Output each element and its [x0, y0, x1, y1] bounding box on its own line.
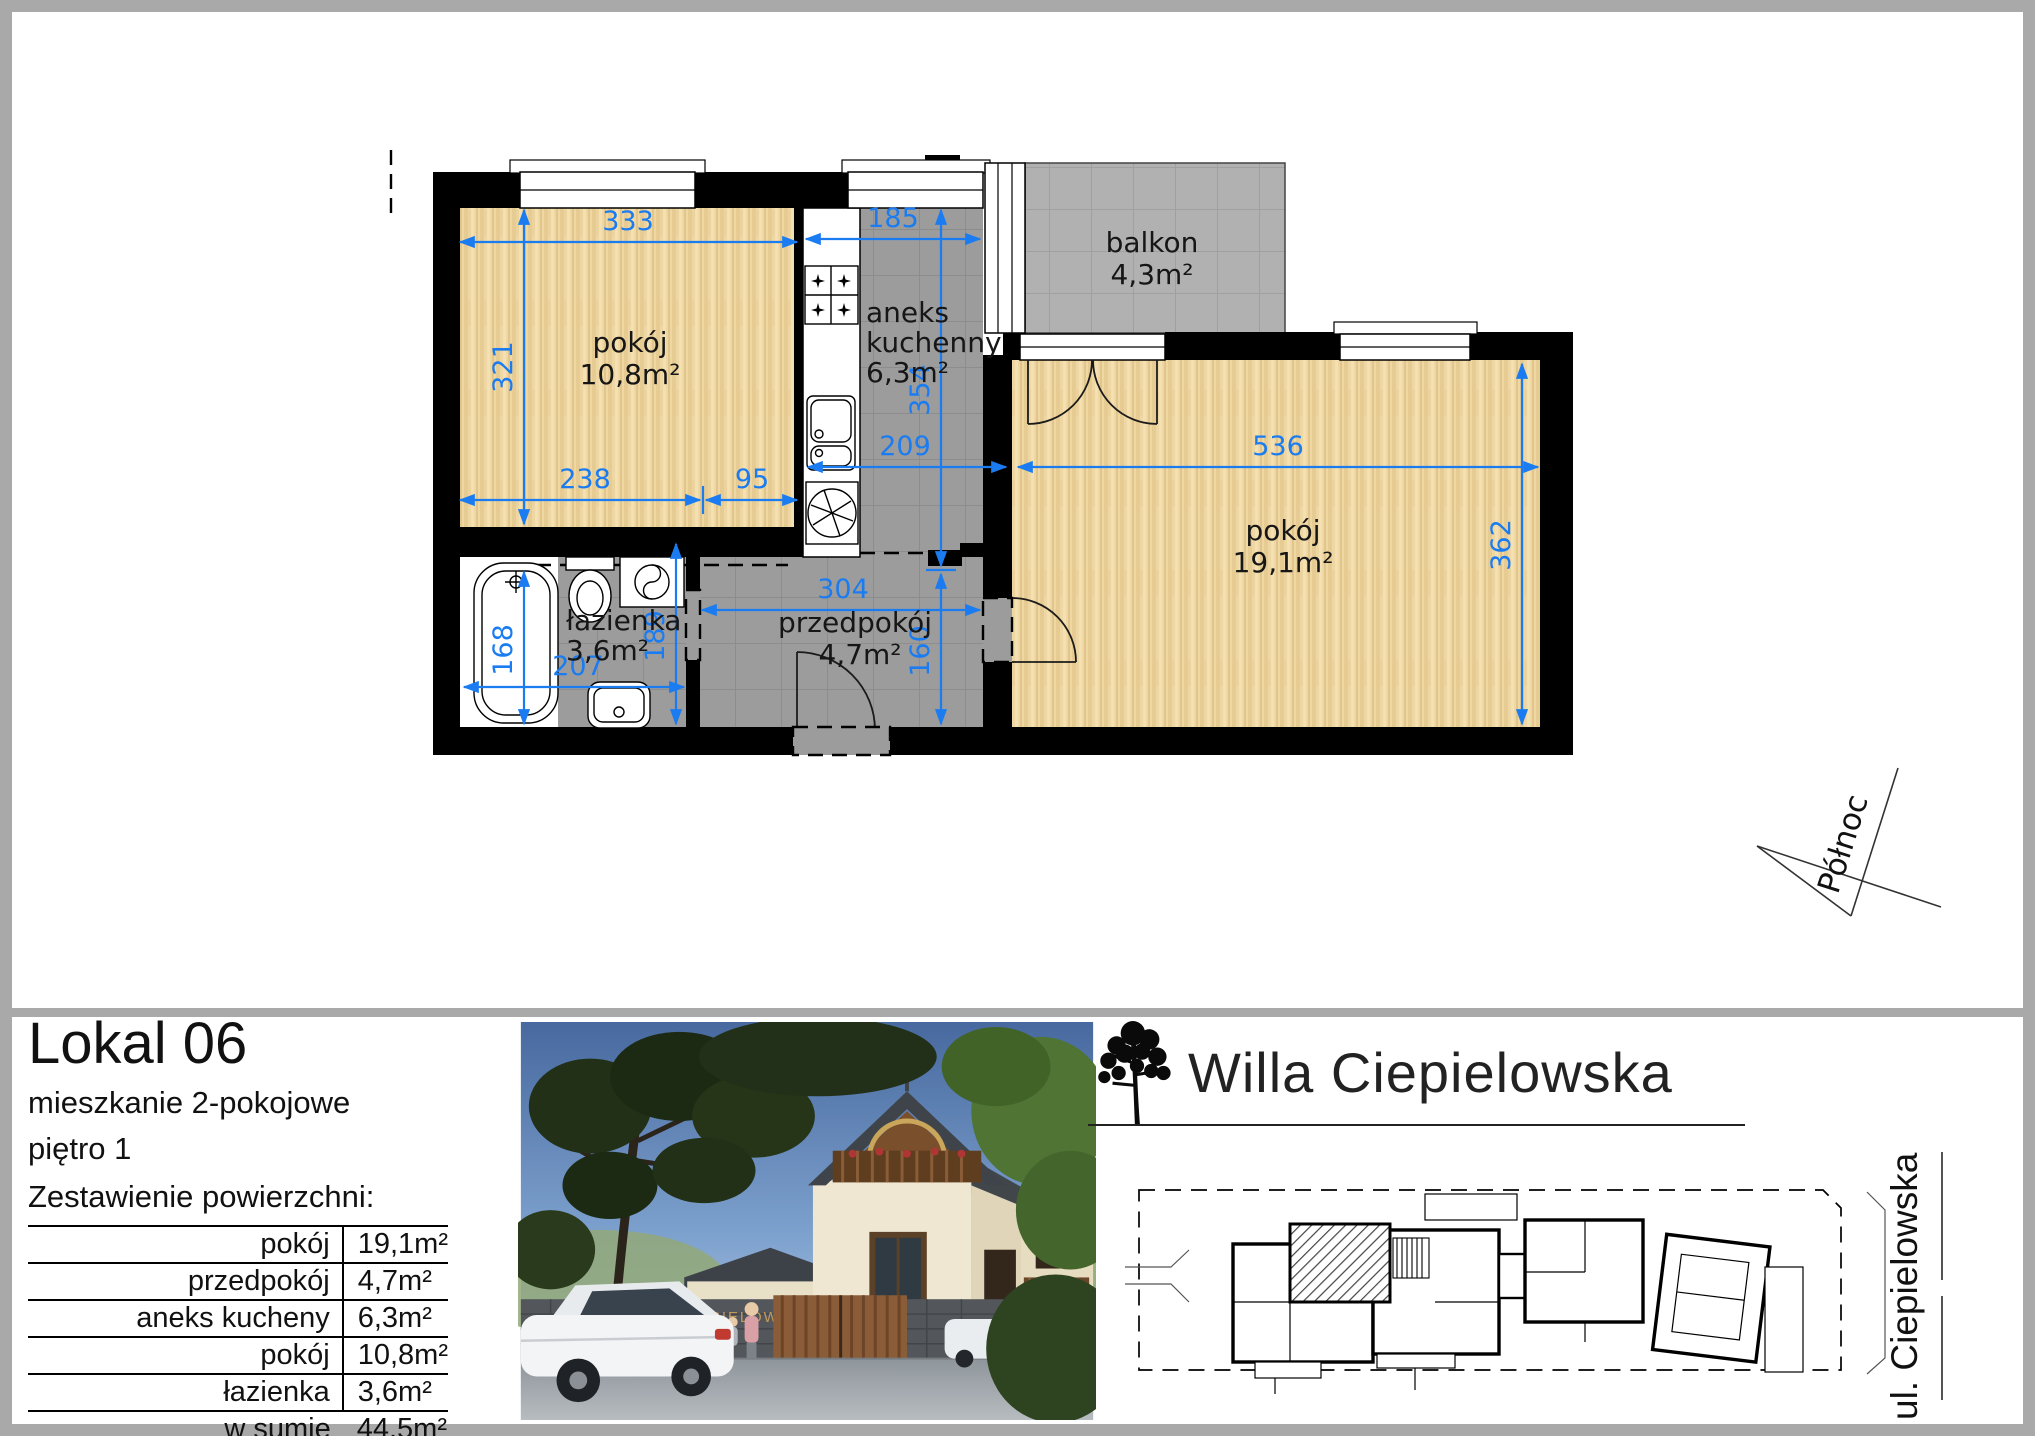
street-edge: [1941, 1296, 1943, 1400]
row-label: łazienka: [28, 1374, 343, 1411]
kitchen-area: 6,3m²: [866, 356, 949, 389]
logo-tree-icon: [1092, 1020, 1184, 1126]
street-edge: [1941, 1152, 1943, 1280]
dim-label: 333: [602, 206, 654, 237]
unit-floor: piętro 1: [28, 1131, 498, 1167]
border-left: [0, 0, 12, 1436]
kitchen-balcony-door: [985, 163, 1025, 333]
row-value: 10,8m²: [343, 1337, 448, 1374]
unit-type: mieszkanie 2-pokojowe: [28, 1085, 498, 1121]
kitchen-label-2: kuchenny: [866, 326, 1002, 359]
row-value: 19,1m²: [343, 1226, 448, 1263]
table-row: łazienka 3,6m²: [28, 1374, 448, 1411]
border-right: [2023, 0, 2035, 1436]
table-row: przedpokój 4,7m²: [28, 1263, 448, 1300]
bathroom-sink-icon: [588, 682, 650, 728]
row-label: pokój: [28, 1226, 343, 1263]
table-row-summary: w sumie 44,5m²: [28, 1411, 448, 1436]
border-top: [0, 0, 2035, 12]
dim-label: 536: [1252, 431, 1304, 462]
row-label: w sumie: [28, 1411, 343, 1436]
room1-label: pokój: [592, 326, 667, 359]
row-value: 44,5m²: [343, 1411, 448, 1436]
table-row: aneks kucheny 6,3m²: [28, 1300, 448, 1337]
balcony-label: balkon: [1106, 226, 1199, 259]
balcony-area: 4,3m²: [1110, 258, 1193, 291]
hall-area: 4,7m²: [818, 638, 901, 671]
room2-area: 19,1m²: [1233, 546, 1334, 579]
dim-label: 185: [867, 203, 919, 234]
row-value: 6,3m²: [343, 1300, 448, 1337]
row-value: 3,6m²: [343, 1374, 448, 1411]
dim-label: 321: [488, 341, 519, 393]
areas-heading: Zestawienie powierzchni:: [28, 1179, 498, 1215]
hall-label: przedpokój: [778, 606, 932, 639]
table-row: pokój 10,8m²: [28, 1337, 448, 1374]
site-plan: [1125, 1162, 1915, 1424]
bathroom-opening: [686, 590, 700, 660]
gate: [773, 1295, 907, 1364]
window-sill: [1334, 322, 1477, 334]
row-label: aneks kucheny: [28, 1300, 343, 1337]
table-row: pokój 19,1m²: [28, 1226, 448, 1263]
dim-label: 95: [735, 464, 769, 495]
stairs: [1393, 1238, 1429, 1278]
kitchen-sink-icon: [807, 396, 855, 470]
bathroom-label: łazienka: [566, 604, 681, 637]
stove-icon: [805, 266, 858, 324]
dim-label: 168: [488, 624, 519, 676]
bathroom-area: 3,6m²: [566, 634, 649, 667]
kitchen-washer-icon: [806, 482, 858, 544]
areas-table: pokój 19,1m² przedpokój 4,7m² aneks kuch…: [28, 1225, 448, 1436]
logo-wordmark: Willa Ciepielowska: [1188, 1040, 1673, 1105]
dim-label: 304: [817, 574, 869, 605]
room2-opening: [983, 598, 1012, 662]
floorplan-drawing: 333 321 238 95 185 354 209 536 362 168 2…: [0, 0, 2035, 1010]
room2-label: pokój: [1245, 514, 1320, 547]
window-sill: [510, 160, 705, 173]
street-label: ul. Ciepielowska: [1884, 1148, 1926, 1420]
unit-highlight: [1290, 1224, 1390, 1302]
page-title: Lokal 06: [28, 1014, 498, 1075]
entrance-opening: [793, 727, 890, 755]
room1-area: 10,8m²: [580, 358, 681, 391]
north-arrow-icon: Północ: [1757, 768, 1941, 916]
dim-label: 362: [1486, 519, 1517, 571]
bathroom-washer-icon: [620, 557, 684, 607]
plan-sheet: 333 321 238 95 185 354 209 536 362 168 2…: [0, 0, 2035, 1436]
unit-info: Lokal 06 mieszkanie 2-pokojowe piętro 1 …: [28, 1014, 498, 1436]
row-label: pokój: [28, 1337, 343, 1374]
dim-label: 209: [879, 431, 931, 462]
row-value: 4,7m²: [343, 1263, 448, 1300]
row-label: przedpokój: [28, 1263, 343, 1300]
kitchen-label-1: aneks: [866, 296, 949, 329]
dim-label: 238: [559, 464, 611, 495]
window-sill: [842, 160, 990, 173]
building-photo: CIEPIELOWSKA 10: [518, 1022, 1096, 1420]
logo-underline: [1088, 1124, 1745, 1126]
